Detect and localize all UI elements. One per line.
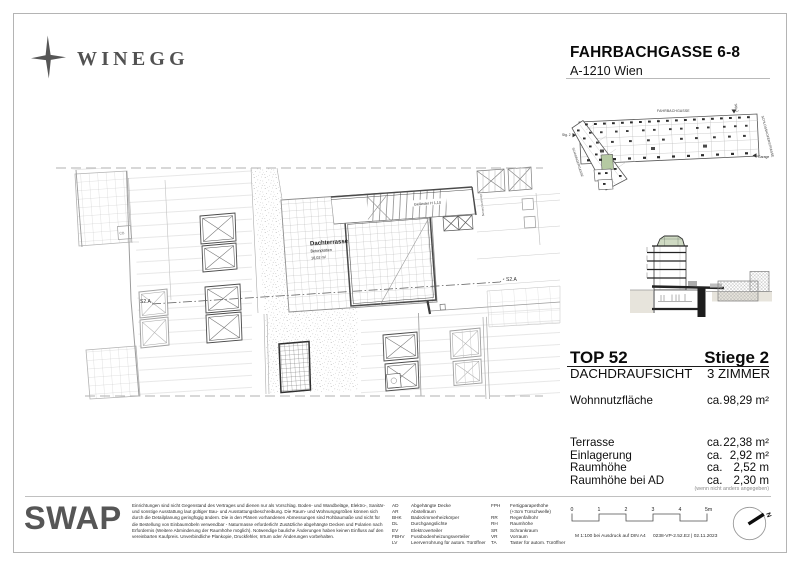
svg-text:3: 3 bbox=[652, 507, 655, 513]
svg-text:1: 1 bbox=[598, 507, 601, 513]
svg-text:Absturzsicherung: Absturzsicherung bbox=[479, 194, 486, 217]
svg-text:5m: 5m bbox=[705, 507, 712, 513]
svg-text:S2.A: S2.A bbox=[140, 299, 152, 305]
svg-text:SCHLOSSHOFERSTRASSE: SCHLOSSHOFERSTRASSE bbox=[761, 115, 775, 158]
svg-text:FAHRBACHGASSE: FAHRBACHGASSE bbox=[657, 109, 690, 113]
svg-text:Garage: Garage bbox=[758, 155, 769, 159]
svg-text:2: 2 bbox=[625, 507, 628, 513]
svg-text:0: 0 bbox=[571, 507, 574, 513]
svg-text:CB: CB bbox=[119, 231, 125, 235]
svg-text:N: N bbox=[764, 512, 772, 519]
svg-text:Stg. 2: Stg. 2 bbox=[562, 133, 571, 137]
svg-text:4: 4 bbox=[679, 507, 682, 513]
svg-text:S2.A: S2.A bbox=[506, 277, 518, 283]
